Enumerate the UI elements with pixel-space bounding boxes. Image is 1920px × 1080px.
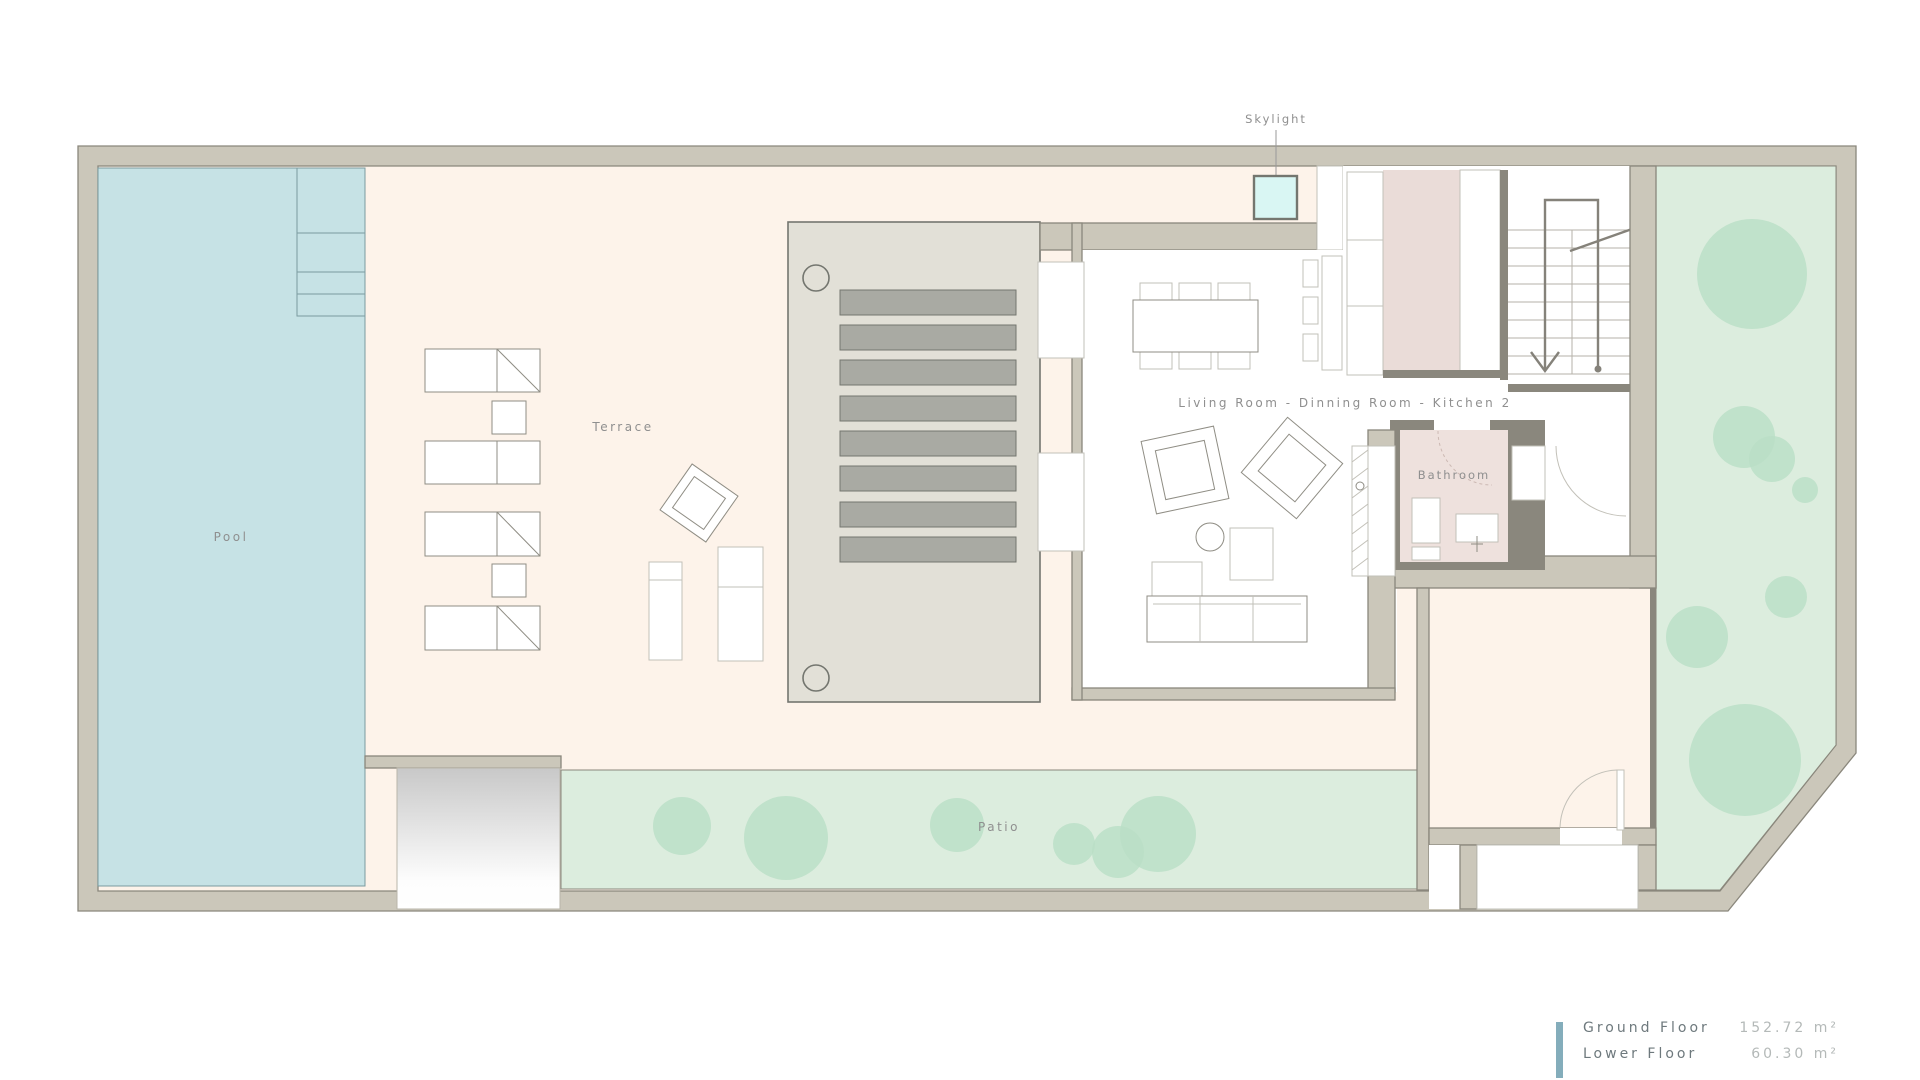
sun-lounger <box>425 441 540 484</box>
tree <box>1120 796 1196 872</box>
driveway-ramp <box>397 768 560 909</box>
armchair <box>1141 426 1229 514</box>
legend-value: 152.72 m² <box>1739 1018 1839 1039</box>
tree <box>1666 606 1728 668</box>
dining-chair <box>1218 352 1250 369</box>
bathroom <box>1390 420 1545 570</box>
sofa-arm <box>718 547 763 661</box>
kitchen-counter <box>1347 172 1383 375</box>
pergola-column <box>803 665 829 691</box>
porch-side-wall <box>1460 845 1477 909</box>
bathroom-window <box>1512 446 1545 500</box>
legend-row: Lower Floor 60.30 m² <box>1583 1044 1839 1065</box>
bar-counter <box>1322 256 1342 370</box>
skylight-label: Skylight <box>1245 112 1307 126</box>
entry-door-opening <box>1560 828 1622 845</box>
terrace-edge-wall <box>365 756 561 768</box>
bar-area <box>1303 256 1342 370</box>
pool-label: Pool <box>214 530 249 544</box>
sun-lounger <box>425 606 540 650</box>
legend-row: Ground Floor 152.72 m² <box>1583 1018 1839 1039</box>
pergola-column <box>803 265 829 291</box>
dining-chair <box>1179 352 1211 369</box>
bar-stool <box>1303 297 1318 324</box>
tree <box>1765 576 1807 618</box>
legend-label: Ground Floor <box>1583 1018 1710 1039</box>
floor-plan-canvas: Pool Terrace Patio Skylight Bathroom Liv… <box>0 0 1920 1080</box>
legend-accent-bar <box>1556 1022 1563 1078</box>
bar-stool <box>1303 260 1318 287</box>
sun-lounger <box>425 512 540 556</box>
legend-label: Lower Floor <box>1583 1044 1697 1065</box>
pergola-slat <box>840 502 1016 527</box>
tree <box>744 796 828 880</box>
skylight-marker <box>1254 176 1297 219</box>
bathroom-label: Bathroom <box>1418 468 1490 482</box>
terrace-label: Terrace <box>591 420 653 434</box>
window <box>1368 446 1395 576</box>
dining-chair <box>1218 283 1250 300</box>
entry-door-leaf <box>1617 770 1624 830</box>
toilet-base <box>1412 547 1440 560</box>
building-right-wall <box>1630 166 1656 588</box>
dining-chair <box>1140 283 1172 300</box>
tree <box>653 797 711 855</box>
living-room-bottom-wall <box>1072 688 1395 700</box>
pool-area <box>98 168 365 886</box>
entry-porch <box>1477 845 1638 909</box>
stair-bottom-wall <box>1508 384 1630 392</box>
sofa-body <box>1147 596 1307 642</box>
tree <box>1792 477 1818 503</box>
coffee-table <box>1196 523 1224 551</box>
kitchen-floor <box>1383 170 1460 375</box>
dining-chair <box>1140 352 1172 369</box>
pergola-slat <box>840 466 1016 491</box>
legend-rows: Ground Floor 152.72 m² Lower Floor 60.30… <box>1583 1018 1856 1065</box>
patio-label: Patio <box>978 820 1020 834</box>
pergola-slat <box>840 537 1016 562</box>
kitchen-stair-wall <box>1500 170 1508 380</box>
stair-arrow-origin <box>1595 366 1602 373</box>
pergola-slat <box>840 325 1016 350</box>
side-table <box>1230 528 1273 580</box>
door-opening <box>1317 166 1343 250</box>
tree <box>1697 219 1807 329</box>
sun-lounger <box>425 349 540 392</box>
window <box>1038 453 1084 551</box>
sliding-door <box>1352 446 1368 576</box>
area-legend: Ground Floor 152.72 m² Lower Floor 60.30… <box>1556 1018 1856 1065</box>
pergola-slat <box>840 431 1016 456</box>
entry-left-wall <box>1417 588 1429 890</box>
dining-table <box>1133 300 1258 352</box>
dining-set <box>1133 283 1258 369</box>
sofa-arm <box>649 562 682 660</box>
tree <box>1689 704 1801 816</box>
floor-plan-svg: Pool Terrace Patio Skylight Bathroom Liv… <box>0 0 1920 1080</box>
porch-side-wall <box>1638 845 1656 890</box>
bar-stool <box>1303 334 1318 361</box>
window <box>1038 262 1084 358</box>
tree <box>1749 436 1795 482</box>
tree <box>1053 823 1095 865</box>
legend-value: 60.30 m² <box>1751 1044 1839 1065</box>
toilet <box>1412 498 1440 543</box>
entry-right-wall <box>1650 588 1656 828</box>
kitchen-bottom-wall <box>1383 370 1508 378</box>
kitchen-island <box>1460 170 1500 375</box>
pergola-slat <box>840 290 1016 315</box>
pergola <box>788 222 1040 702</box>
tree <box>930 798 984 852</box>
pergola-slat <box>840 396 1016 421</box>
bathroom-door-opening <box>1434 420 1490 430</box>
pergola-slat <box>840 360 1016 385</box>
armchair-outline <box>1141 426 1229 514</box>
lounger-table <box>492 564 526 597</box>
lounger-table <box>492 401 526 434</box>
porch-side-floor <box>1429 845 1460 909</box>
sliding-door-panel <box>1352 446 1368 576</box>
dining-chair <box>1179 283 1211 300</box>
living-area-label: Living Room - Dinning Room - Kitchen 2 <box>1178 396 1511 410</box>
